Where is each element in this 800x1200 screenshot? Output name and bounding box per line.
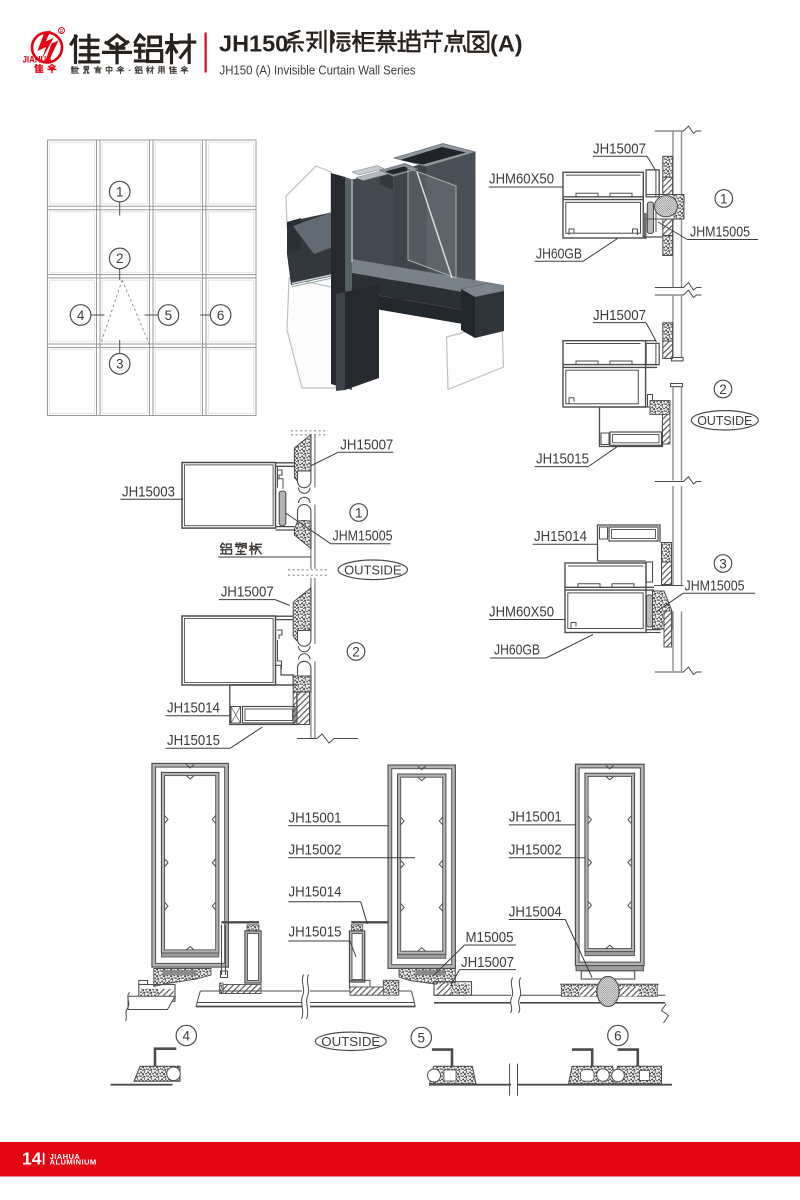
svg-text:JH150 (A) Invisible Curtain Wa: JH150 (A) Invisible Curtain Wall Series bbox=[220, 64, 416, 78]
svg-text:JH15003: JH15003 bbox=[122, 483, 175, 500]
svg-text:JHM15005: JHM15005 bbox=[685, 578, 745, 595]
svg-text:JH15002: JH15002 bbox=[289, 842, 342, 859]
svg-text:JHM60X50: JHM60X50 bbox=[489, 171, 554, 188]
svg-text:JH15007: JH15007 bbox=[221, 584, 274, 601]
svg-text:3: 3 bbox=[116, 357, 124, 372]
svg-text:JH15014: JH15014 bbox=[289, 884, 342, 901]
svg-text:JH15015: JH15015 bbox=[536, 451, 589, 468]
svg-text:JH15007: JH15007 bbox=[593, 307, 646, 324]
svg-text:JH60GB: JH60GB bbox=[536, 246, 582, 263]
svg-text:ALUMINIUM: ALUMINIUM bbox=[50, 1158, 97, 1167]
svg-text:JH60GB: JH60GB bbox=[494, 642, 540, 659]
svg-text:2: 2 bbox=[116, 251, 124, 266]
svg-text:(A): (A) bbox=[490, 31, 523, 57]
svg-text:JH15007: JH15007 bbox=[461, 954, 514, 971]
svg-text:5: 5 bbox=[418, 1030, 426, 1045]
svg-text:6: 6 bbox=[614, 1028, 622, 1043]
svg-text:JH15015: JH15015 bbox=[167, 732, 220, 749]
svg-text:JH15015: JH15015 bbox=[289, 924, 342, 941]
svg-text:JH15007: JH15007 bbox=[593, 141, 646, 158]
svg-text:JH15014: JH15014 bbox=[167, 700, 220, 717]
svg-text:JH15002: JH15002 bbox=[509, 842, 562, 859]
svg-text:1: 1 bbox=[116, 184, 124, 199]
svg-text:6: 6 bbox=[217, 308, 225, 323]
svg-text:OUTSIDE: OUTSIDE bbox=[697, 413, 752, 428]
svg-text:5: 5 bbox=[165, 308, 173, 323]
svg-text:OUTSIDE: OUTSIDE bbox=[344, 562, 402, 577]
svg-text:JH15014: JH15014 bbox=[534, 528, 587, 545]
svg-text:R: R bbox=[60, 29, 64, 35]
svg-text:JH15007: JH15007 bbox=[340, 437, 393, 454]
svg-text:2: 2 bbox=[352, 644, 360, 659]
svg-text:3: 3 bbox=[719, 556, 727, 571]
svg-text:JH150: JH150 bbox=[219, 31, 288, 57]
svg-text:JH15004: JH15004 bbox=[509, 904, 562, 921]
svg-text:OUTSIDE: OUTSIDE bbox=[321, 1034, 380, 1049]
svg-text:JH15001: JH15001 bbox=[289, 810, 342, 827]
svg-text:JHM15005: JHM15005 bbox=[333, 528, 393, 545]
svg-text:14: 14 bbox=[22, 1149, 42, 1169]
svg-text:2: 2 bbox=[719, 382, 727, 397]
svg-text:4: 4 bbox=[183, 1028, 191, 1043]
svg-text:JH15001: JH15001 bbox=[509, 809, 562, 826]
svg-text:4: 4 bbox=[77, 308, 85, 323]
svg-text:M15005: M15005 bbox=[466, 929, 514, 946]
svg-text:1: 1 bbox=[720, 191, 728, 206]
svg-text:1: 1 bbox=[355, 505, 363, 520]
svg-text:JHM60X50: JHM60X50 bbox=[489, 604, 554, 621]
svg-text:JHM15005: JHM15005 bbox=[690, 224, 750, 241]
svg-text:JIAHUA: JIAHUA bbox=[23, 55, 53, 65]
